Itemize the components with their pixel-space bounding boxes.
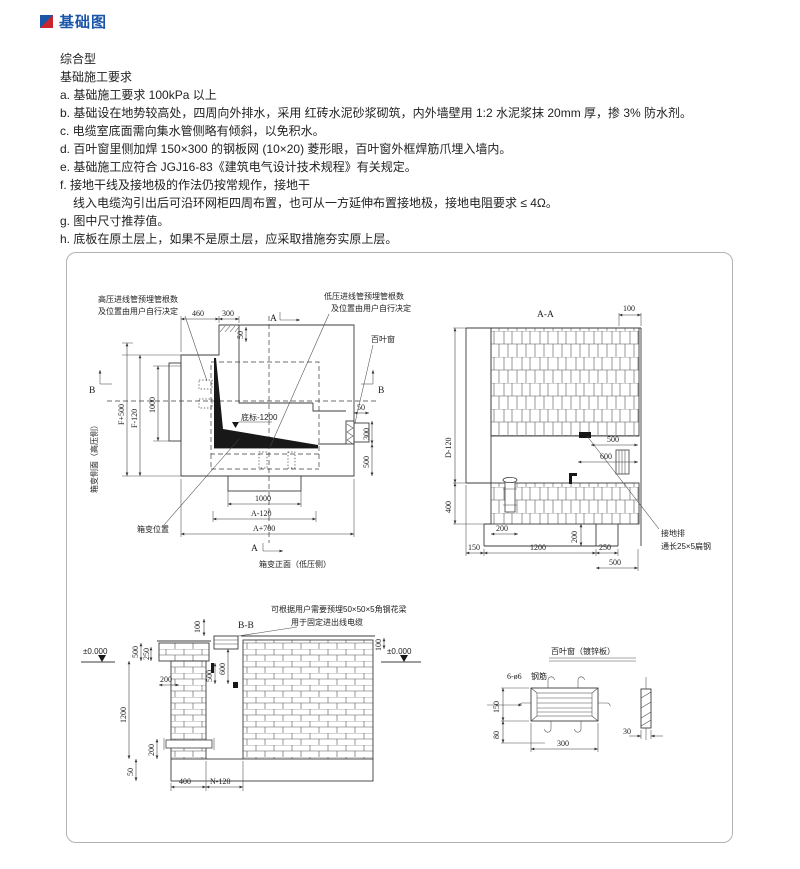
dim-50-right: 50 — [357, 403, 365, 412]
ground-bus-label1: 接地排 — [661, 528, 685, 538]
page-header: 基础图 — [40, 11, 107, 32]
aa-dim-200-right: 200 — [570, 531, 579, 543]
dim-460: 460 — [192, 309, 204, 318]
type-label: 综合型 — [60, 50, 750, 68]
dim-300-right: 300 — [362, 428, 371, 440]
dim-500-right: 500 — [362, 456, 371, 468]
bb-dim-500-left: 500 — [131, 646, 140, 658]
aa-dim-100: 100 — [623, 304, 635, 313]
apron-step — [228, 476, 301, 491]
plan-level-marker: 底标-1200 — [232, 412, 278, 428]
section-mark-b-right: B — [378, 386, 384, 396]
note-item-g: g. 图中尺寸推荐值。 — [60, 212, 750, 230]
note-item-c: c. 电缆室底面需向集水管侧略有倾斜，以免积水。 — [60, 122, 750, 140]
bb-callout: 可根据用户需要预埋50×50×5角钢花梁 用于固定进出线电缆 — [232, 604, 407, 637]
bb-embed-angle-steel — [214, 636, 238, 649]
dim-300-top: 300 — [222, 309, 234, 318]
hv-louver — [169, 363, 181, 441]
note-item-d: d. 百叶窗里侧加焊 150×300 的钢板网 (10×20) 菱形眼，百叶窗外… — [60, 140, 750, 158]
note-item-e: e. 基础施工应符合 JGJ16-83《建筑电气设计技术规程》有关规定。 — [60, 158, 750, 176]
plan-side-label: 箱变侧面（高压侧） — [89, 421, 99, 493]
level-label: 底标-1200 — [241, 412, 278, 422]
section-marker-icon — [40, 15, 53, 28]
section-bb-view: B-B 可根据用户需要预埋50×50×5角钢花梁 用于固定进出线电缆 — [81, 604, 421, 791]
aa-dim-d-minus-120: D-120 — [444, 438, 453, 458]
louver-dim-300: 300 — [557, 739, 569, 748]
bb-right-wall — [243, 640, 373, 759]
bb-dim-100-left: 100 — [193, 621, 202, 633]
section-bb-title: B-B — [238, 621, 254, 631]
bb-dim-1200: 1200 — [119, 707, 128, 723]
bb-dim-200-pipe: 200 — [147, 744, 156, 756]
louver-dim-150: 150 — [492, 701, 501, 713]
note-item-f: f. 接地干线及接地极的作法仍按常规作，接地干 — [60, 176, 750, 194]
note-item-h: h. 底板在原土层上，如果不是原土层，应采取措施夯实原上层。 — [60, 230, 750, 248]
louver-front — [487, 677, 610, 732]
aa-dim-1200: 1200 — [530, 543, 546, 552]
bb-dim-600: 600 — [218, 663, 227, 675]
aa-step-angle — [569, 473, 577, 484]
callout-hv-line2: 及位置由用户自行决定 — [98, 306, 178, 316]
louver-title: 百叶窗（镀锌板） — [551, 646, 615, 656]
aa-dim-600: 600 — [600, 452, 612, 461]
louver-rebar-label: 钢筋 — [531, 671, 547, 681]
plan-view: 底标-1200 460 300 50 F+500 F-120 1000 — [89, 291, 411, 569]
louver-rebar-count: 6-ø6 — [507, 672, 522, 681]
aa-dim-500-mid: 500 — [607, 435, 619, 444]
dim-1000-bottom: 1000 — [255, 494, 271, 503]
note-item-f-cont: 线入电缆沟引出后可沿环网柜四周布置，也可从一方延伸布置接地极，接地电阻要求 ≤ … — [60, 194, 750, 212]
dim-a-plus-700: A+700 — [253, 524, 275, 533]
bb-dim-100-right: 100 — [374, 639, 383, 651]
notes-title: 基础施工要求 — [60, 68, 750, 86]
louver-side-view: 30 — [623, 677, 663, 740]
bb-dim-50: 50 — [126, 768, 135, 776]
note-item-b: b. 基础设在地势较高处，四周向外排水，采用 红砖水泥砂浆砌筑，内外墙壁用 1:… — [60, 104, 750, 122]
bb-callout-line2: 用于固定进出线电缆 — [291, 617, 363, 627]
callout-hv-line1: 高压进线管预埋管根数 — [98, 294, 178, 304]
bb-drain-pipe — [166, 740, 212, 748]
callout-lv-line1: 低压进线管预埋管根数 — [324, 291, 404, 301]
dim-1000-left: 1000 — [148, 397, 157, 413]
bb-parapet — [159, 643, 209, 661]
aa-drain-pipe — [505, 481, 515, 512]
bb-base-slab — [171, 759, 373, 781]
dim-50-top: 50 — [236, 331, 245, 339]
section-aa-title: A-A — [537, 310, 554, 320]
note-item-a: a. 基础施工要求 100kPa 以上 — [60, 86, 750, 104]
dim-f-plus-500: F+500 — [117, 404, 126, 425]
foundation-drawings: 底标-1200 460 300 50 F+500 F-120 1000 — [67, 253, 732, 842]
section-aa-view: A-A 100 500 600 — [444, 304, 711, 571]
bb-dim-500-center: 500 — [205, 670, 214, 682]
aa-upper-brick-wall — [491, 328, 639, 436]
plan-front-label: 箱变正面（低压侧） — [259, 559, 331, 569]
bb-dim-250: 250 — [142, 648, 151, 660]
louver-dim-80: 80 — [492, 731, 501, 739]
transformer-position-label: 箱变位置 — [137, 524, 169, 534]
page-title: 基础图 — [59, 11, 107, 32]
plan-dimensions: 460 300 50 F+500 F-120 1000 50 300 500 — [117, 309, 372, 537]
bb-dim-n-minus-120: N-120 — [210, 777, 230, 786]
bb-dim-400: 400 — [179, 777, 191, 786]
foundation-drawing-panel: 底标-1200 460 300 50 F+500 F-120 1000 — [66, 252, 733, 843]
ground-bus-bar — [579, 432, 591, 438]
aa-dim-150: 150 — [468, 543, 480, 552]
aa-dim-250: 250 — [599, 543, 611, 552]
section-mark-a-top: A — [270, 314, 277, 324]
notes-block: 综合型 基础施工要求 a. 基础施工要求 100kPa 以上 b. 基础设在地势… — [60, 50, 750, 248]
dim-f-minus-120: F-120 — [130, 409, 139, 428]
callout-lv-line2: 及位置由用户自行决定 — [331, 303, 411, 313]
aa-dim-500-bottom: 500 — [609, 558, 621, 567]
louver-detail-view: 百叶窗（镀锌板） 6-ø6 钢筋 150 80 — [487, 646, 663, 752]
dim-a-minus-120: A-120 — [251, 509, 271, 518]
section-mark-b-left: B — [89, 386, 95, 396]
bb-callout-line1: 可根据用户需要预埋50×50×5角钢花梁 — [271, 604, 407, 614]
aa-dim-400: 400 — [444, 501, 453, 513]
plan-louver-label: 百叶窗 — [371, 334, 395, 344]
bb-structure — [157, 636, 375, 781]
aa-dim-200-left: 200 — [496, 524, 508, 533]
bb-level-left: ±0.000 — [83, 647, 108, 656]
ground-bus-label2: 通长25×5扁钢 — [661, 541, 711, 551]
louver-dimensions: 150 80 300 — [492, 688, 598, 752]
plan-hidden-lines — [107, 316, 379, 543]
louver-dim-30: 30 — [623, 727, 631, 736]
bb-level-right: ±0.000 — [387, 647, 412, 656]
section-mark-a-bottom: A — [251, 544, 258, 554]
bb-dim-200-wall: 200 — [160, 675, 172, 684]
